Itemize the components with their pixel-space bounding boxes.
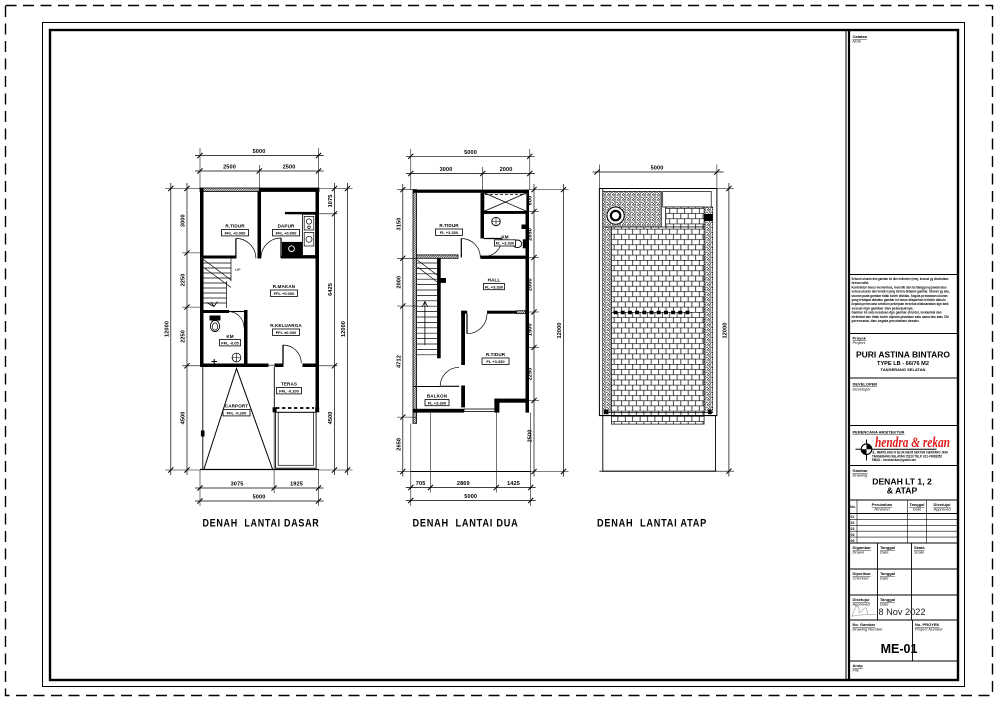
svg-text:4500: 4500 xyxy=(328,411,334,424)
svg-text:01: 01 xyxy=(851,515,855,519)
svg-text:FFL +0.000: FFL +0.000 xyxy=(225,230,246,235)
svg-text:FL +3.330: FL +3.330 xyxy=(496,241,515,246)
svg-text:04: 04 xyxy=(851,533,855,537)
svg-text:Checked: Checked xyxy=(853,576,870,581)
svg-text:Project Number: Project Number xyxy=(915,627,943,632)
svg-text:Developer: Developer xyxy=(853,387,872,392)
svg-text:Date: Date xyxy=(913,507,922,512)
svg-text:R.TIDUR: R.TIDUR xyxy=(225,224,245,229)
svg-text:Project: Project xyxy=(853,340,866,345)
svg-text:Approved: Approved xyxy=(852,602,871,607)
svg-text:Date: Date xyxy=(880,550,889,555)
svg-text:5000: 5000 xyxy=(464,150,477,156)
svg-text:2500: 2500 xyxy=(283,165,296,171)
svg-text:2000: 2000 xyxy=(500,167,513,173)
svg-text:2650: 2650 xyxy=(528,228,534,241)
svg-text:FL +3.330: FL +3.330 xyxy=(428,400,447,405)
svg-text:2658: 2658 xyxy=(397,438,403,451)
svg-text:R.MAKAN: R.MAKAN xyxy=(273,284,296,289)
svg-text:FFL -0.100: FFL -0.100 xyxy=(279,388,299,393)
svg-text:02: 02 xyxy=(851,521,855,525)
svg-text:03: 03 xyxy=(851,527,855,531)
svg-text:BALKON: BALKON xyxy=(427,394,448,399)
svg-text:Approved: Approved xyxy=(932,507,951,512)
svg-text:FFL ±0.000: FFL ±0.000 xyxy=(276,330,297,335)
svg-text:2000: 2000 xyxy=(397,276,403,289)
svg-text:12000: 12000 xyxy=(165,321,171,337)
svg-text:ME-01: ME-01 xyxy=(881,642,918,656)
svg-text:6425: 6425 xyxy=(328,283,334,296)
svg-text:DENAH LANTAI DASAR: DENAH LANTAI DASAR xyxy=(203,518,320,530)
svg-text:2250: 2250 xyxy=(528,368,534,381)
svg-text:Scale: Scale xyxy=(914,550,925,555)
svg-text:12000: 12000 xyxy=(723,322,729,338)
svg-text:12000: 12000 xyxy=(341,321,347,337)
svg-text:3000: 3000 xyxy=(181,214,187,227)
svg-text:FFL +0.000: FFL +0.000 xyxy=(276,230,297,235)
svg-text:2250: 2250 xyxy=(181,274,187,287)
svg-text:3150: 3150 xyxy=(397,218,403,231)
svg-text:File: File xyxy=(853,668,860,673)
svg-text:KM: KM xyxy=(501,235,508,240)
svg-text:3000: 3000 xyxy=(440,167,453,173)
svg-text:600: 600 xyxy=(528,196,534,206)
svg-text:HALL: HALL xyxy=(488,278,501,283)
svg-text:FL +3.330: FL +3.330 xyxy=(440,230,459,235)
svg-text:No.: No. xyxy=(850,505,856,509)
svg-text:12000: 12000 xyxy=(557,322,563,338)
svg-text:FL +3.330: FL +3.330 xyxy=(486,359,505,364)
svg-text:R.TIDUR: R.TIDUR xyxy=(439,223,459,228)
svg-text:TANGERANG SELATAN: TANGERANG SELATAN xyxy=(881,367,926,372)
svg-text:5000: 5000 xyxy=(253,149,266,155)
svg-text:TERAS: TERAS xyxy=(281,382,297,387)
svg-text:5000: 5000 xyxy=(464,494,477,500)
svg-text:Note: Note xyxy=(853,39,862,44)
svg-text:Drawn: Drawn xyxy=(853,550,865,555)
svg-text:& ATAP: & ATAP xyxy=(887,486,918,496)
svg-text:4712: 4712 xyxy=(397,355,403,368)
svg-text:DAPUR: DAPUR xyxy=(278,224,295,229)
svg-text:perencana, dan segala perubaha: perencana, dan segala perubahan desain. xyxy=(852,319,920,323)
svg-text:1075: 1075 xyxy=(328,195,334,208)
svg-text:hendra & rekan: hendra & rekan xyxy=(875,435,950,451)
svg-text:R.TIDUR: R.TIDUR xyxy=(486,352,506,357)
svg-text:KM: KM xyxy=(226,334,233,339)
svg-text:8 Nov 2022: 8 Nov 2022 xyxy=(879,607,926,617)
svg-text:FFL -0.05: FFL -0.05 xyxy=(221,340,239,345)
svg-text:R.KELUARGA: R.KELUARGA xyxy=(270,323,302,328)
svg-text:FL +3.330: FL +3.330 xyxy=(485,284,504,289)
svg-text:3075: 3075 xyxy=(231,482,244,488)
svg-text:Date: Date xyxy=(880,602,889,607)
svg-text:5000: 5000 xyxy=(253,495,266,501)
svg-text:DENAH LANTAI ATAP: DENAH LANTAI ATAP xyxy=(597,518,707,530)
svg-text:1500: 1500 xyxy=(528,323,534,336)
svg-text:FFL -0.200: FFL -0.200 xyxy=(227,410,247,415)
svg-text:5000: 5000 xyxy=(651,166,664,172)
svg-text:05: 05 xyxy=(851,539,855,543)
svg-text:2500: 2500 xyxy=(223,165,236,171)
svg-text:UP: UP xyxy=(235,267,241,272)
svg-text:DENAH LANTAI DUA: DENAH LANTAI DUA xyxy=(413,518,519,530)
svg-text:2869: 2869 xyxy=(457,481,470,487)
svg-text:4500: 4500 xyxy=(181,411,187,424)
svg-text:1425: 1425 xyxy=(507,481,520,487)
svg-text:PURI ASTINA BINTARO: PURI ASTINA BINTARO xyxy=(856,351,950,360)
svg-text:1925: 1925 xyxy=(290,482,303,488)
svg-text:EMAIL : hendrarekan@gmail.com: EMAIL : hendrarekan@gmail.com xyxy=(872,458,916,462)
svg-text:2000: 2000 xyxy=(528,278,534,291)
svg-text:Drawing: Drawing xyxy=(853,473,868,478)
svg-text:CARPORT: CARPORT xyxy=(225,404,249,409)
svg-text:Revision: Revision xyxy=(874,507,890,512)
svg-text:PERENCANA ARSITEKTUR: PERENCANA ARSITEKTUR xyxy=(853,430,905,435)
svg-text:Drawing Number: Drawing Number xyxy=(853,627,884,632)
svg-text:2250: 2250 xyxy=(181,330,187,343)
svg-text:FFL +0.000: FFL +0.000 xyxy=(274,291,295,296)
svg-text:Date: Date xyxy=(880,576,889,581)
svg-text:705: 705 xyxy=(416,481,426,487)
